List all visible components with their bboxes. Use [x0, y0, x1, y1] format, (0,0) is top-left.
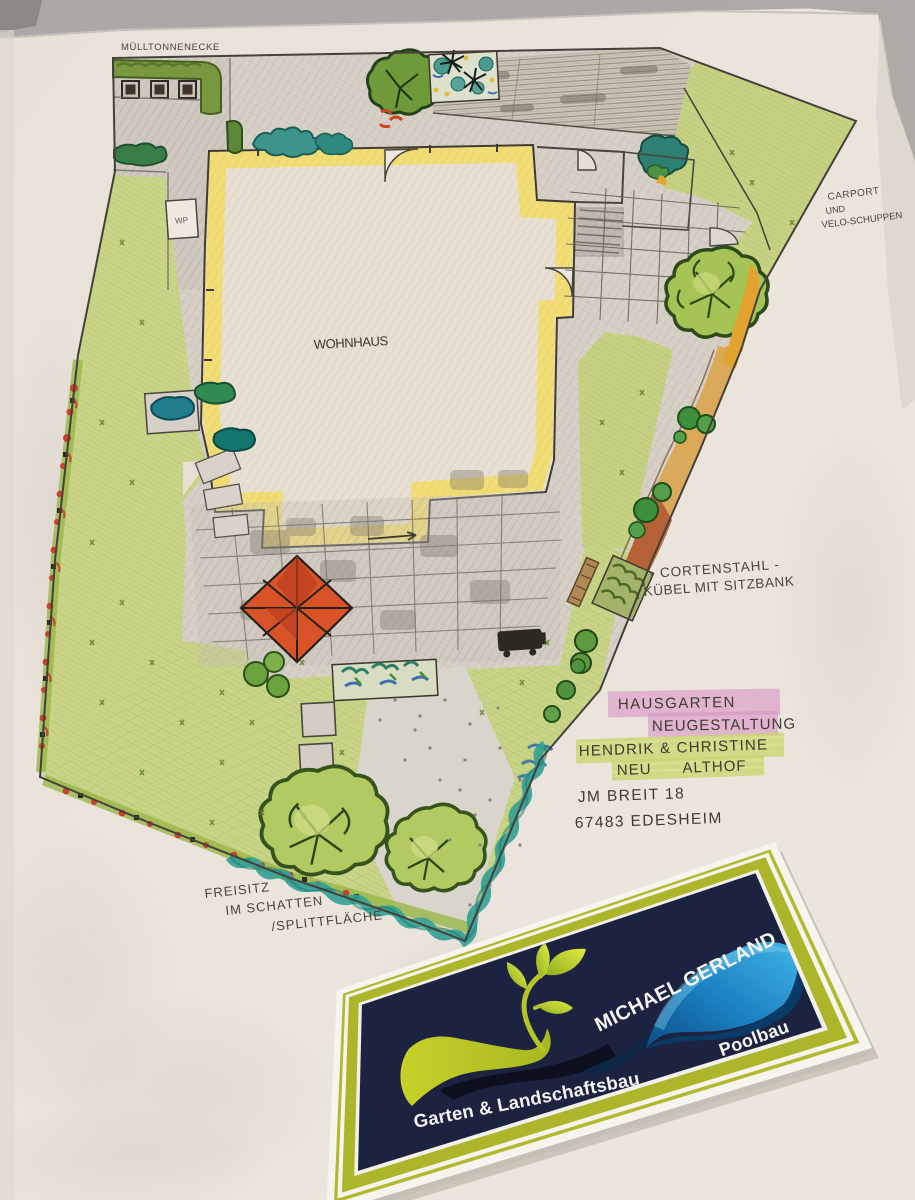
svg-text:HAUSGARTEN: HAUSGARTEN	[618, 694, 736, 713]
svg-text:WP: WP	[175, 216, 188, 226]
svg-text:MÜLLTONNENECKE: MÜLLTONNENECKE	[121, 42, 220, 53]
svg-text:NEUGESTALTUNG: NEUGESTALTUNG	[652, 715, 796, 735]
